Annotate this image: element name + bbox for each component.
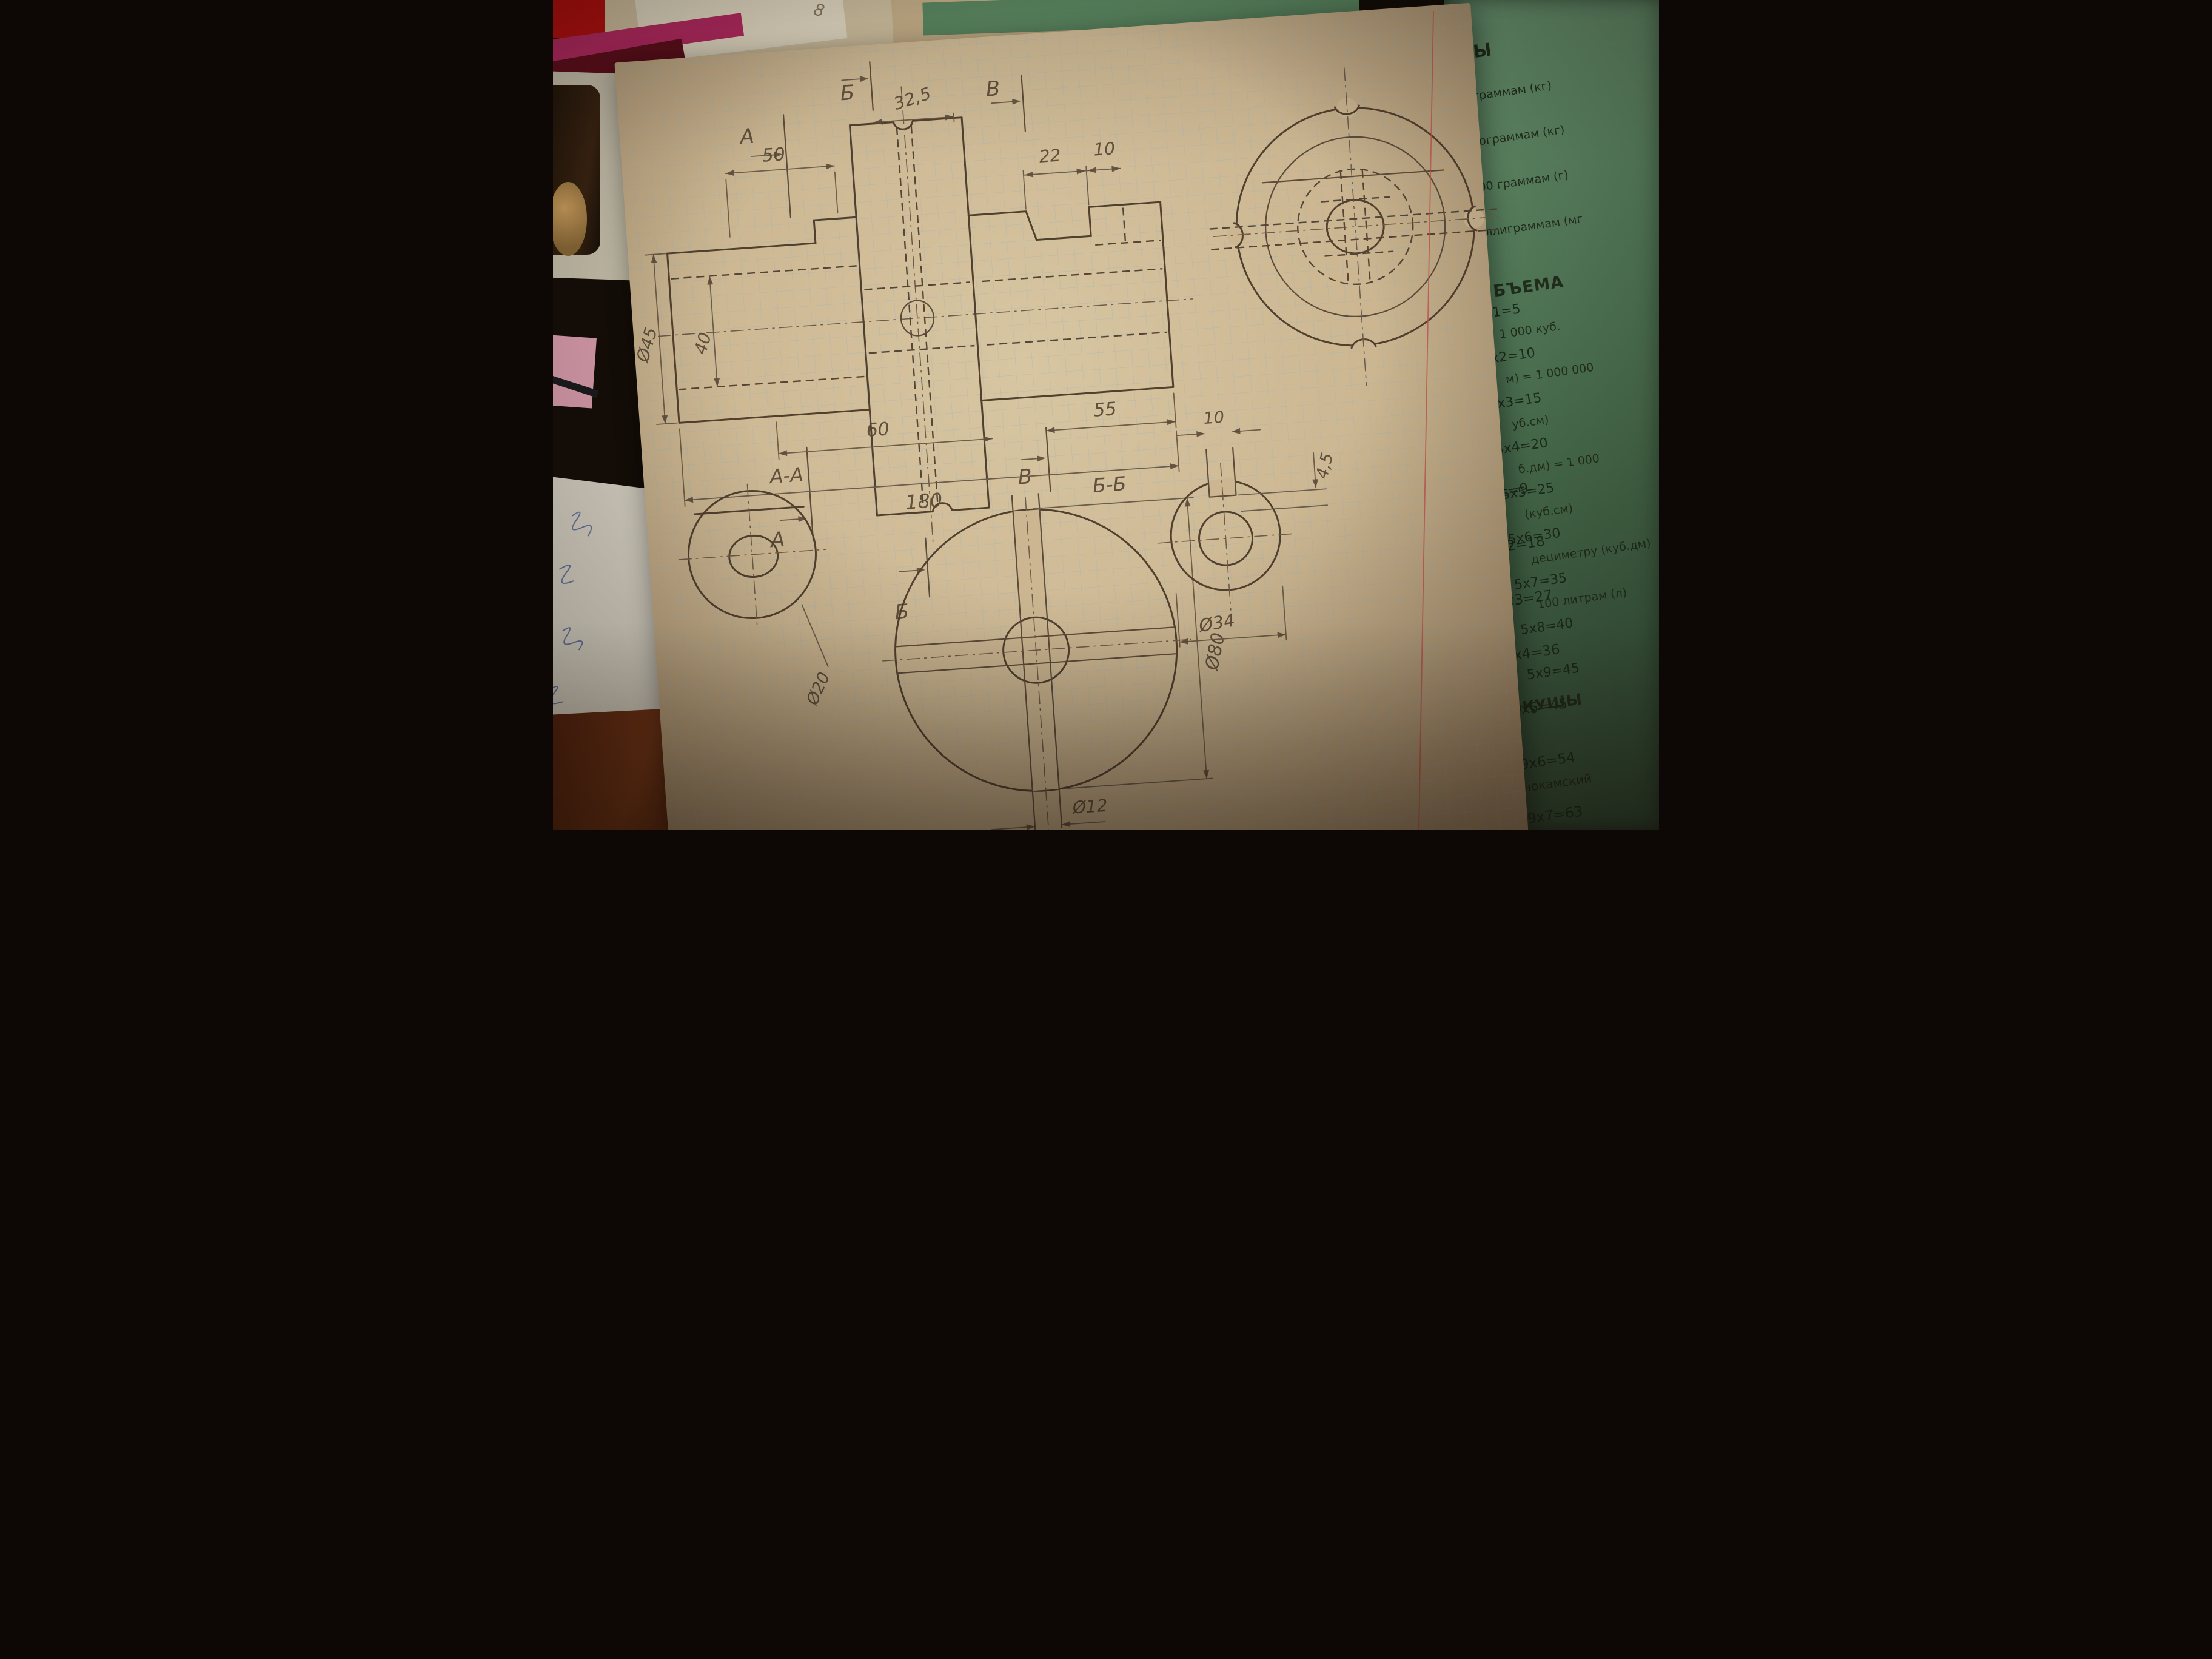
- dim-60: 60: [865, 418, 890, 441]
- dim-55: 55: [1093, 398, 1118, 421]
- dim-dia12: Ø12: [1071, 796, 1108, 818]
- section-letter-b-bottom: Б: [894, 600, 910, 625]
- view-bb-title: Б-Б: [1092, 472, 1127, 497]
- dim-key-width: 10: [1203, 408, 1225, 428]
- section-letter-a-top: А: [738, 124, 755, 150]
- dim-22: 22: [1039, 145, 1062, 166]
- section-letter-v-top: В: [985, 76, 1001, 102]
- photo-of-technical-sketch: 8 СЫ ограммам (кг) тограммам (кг) 00 гра…: [553, 0, 1659, 829]
- dim-10: 10: [1093, 138, 1116, 159]
- sheet-group: А А Б Б В В: [612, 2, 1544, 829]
- section-letter-b-top: Б: [839, 81, 855, 106]
- view-aa-title: А-А: [768, 463, 804, 488]
- dim-180: 180: [905, 489, 943, 514]
- graph-paper-sheet: А А Б Б В В: [553, 0, 1659, 829]
- dim-50: 50: [761, 144, 786, 167]
